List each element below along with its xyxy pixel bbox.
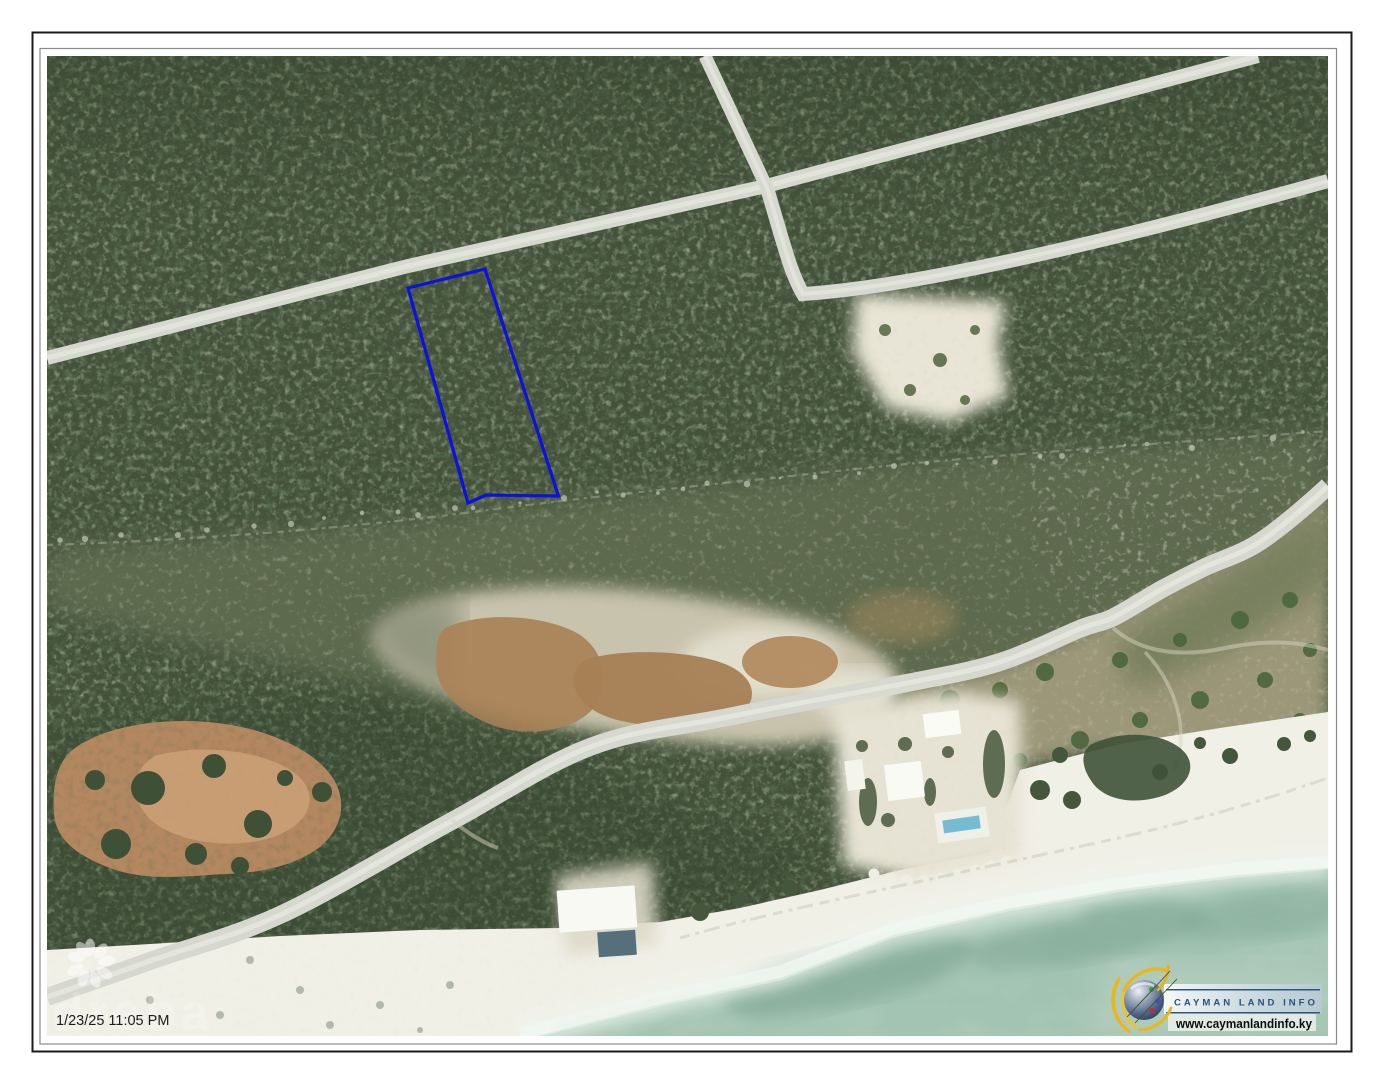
svg-text:www.caymanlandinfo.ky: www.caymanlandinfo.ky [1175, 1016, 1313, 1031]
svg-text:1/23/25 11:05 PM: 1/23/25 11:05 PM [56, 1013, 169, 1029]
svg-text:CAYMAN LAND INFO: CAYMAN LAND INFO [1174, 998, 1318, 1009]
